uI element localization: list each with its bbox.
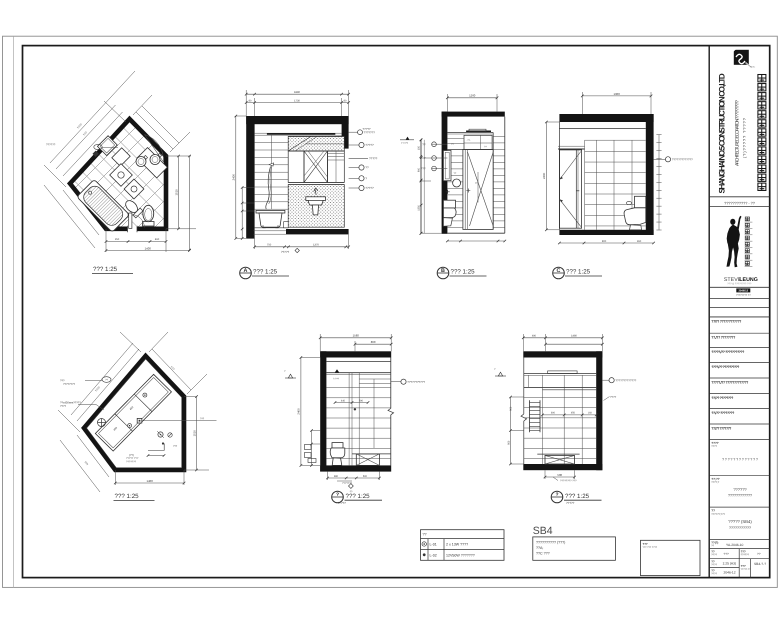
svg-text:1260: 1260 xyxy=(469,94,476,98)
svg-text:1350: 1350 xyxy=(418,205,421,211)
svg-text:RUC: RUC xyxy=(751,66,756,69)
svg-text:500: 500 xyxy=(557,473,562,477)
svg-text:290: 290 xyxy=(359,399,364,402)
svg-text:1890: 1890 xyxy=(294,91,300,94)
svg-text:1730: 1730 xyxy=(294,99,300,102)
svg-text:??,/?? ????????: ??,/?? ???????? xyxy=(711,411,734,415)
svg-text:??: ?? xyxy=(365,166,369,170)
svg-text:??? 1:25: ??? 1:25 xyxy=(566,269,591,276)
svg-text:????: ???? xyxy=(711,554,717,557)
svg-text:? ?.??: ? ?.?? xyxy=(401,142,409,145)
svg-text:????: ???? xyxy=(60,405,66,408)
svg-text:????: ???? xyxy=(610,395,617,399)
svg-text:L-01: L-01 xyxy=(430,543,437,547)
svg-text:??? 1:25: ??? 1:25 xyxy=(253,269,278,276)
svg-text:??,/?? ???????: ??,/?? ??????? xyxy=(711,426,731,430)
svg-text:??????: ?????? xyxy=(741,554,750,557)
svg-text:?????: ????? xyxy=(281,250,290,254)
svg-text:????,/?? ??????????: ????,/?? ?????????? xyxy=(711,365,739,369)
svg-text:????: ???? xyxy=(711,445,717,448)
svg-text:1510: 1510 xyxy=(174,189,178,196)
svg-text:C: C xyxy=(557,268,561,274)
svg-text:???: ??? xyxy=(200,418,205,421)
svg-text:1900: 1900 xyxy=(614,92,621,96)
svg-text:(?)????? ?????: (?)????? ????? xyxy=(742,117,747,158)
svg-text:2 x 13W ????: 2 x 13W ???? xyxy=(446,543,468,547)
svg-text:??A;: ??A; xyxy=(536,546,543,550)
svg-text:2400: 2400 xyxy=(542,172,546,179)
svg-text:2046-12: 2046-12 xyxy=(724,570,736,574)
svg-text:? ? ? ? ? ? ? ? ? ? ? ? ?: ? ? ? ? ? ? ? ? ? ? ? ? ? xyxy=(722,458,758,462)
svg-text:?: ? xyxy=(336,492,339,498)
svg-text:?: ? xyxy=(555,492,558,498)
svg-text:B: B xyxy=(441,268,445,274)
svg-text:?????: ????? xyxy=(365,143,374,147)
svg-text:???????? ???: ???????? ??? xyxy=(560,480,577,483)
svg-text:??: ?? xyxy=(423,533,427,537)
svg-text:?????: ????? xyxy=(365,186,374,190)
svg-text:900: 900 xyxy=(509,406,512,411)
svg-text:??????: ?????? xyxy=(733,487,747,492)
svg-text:1:25 (A3): 1:25 (A3) xyxy=(723,561,737,565)
svg-text:???????: ??????? xyxy=(364,130,376,134)
svg-text:??? 1:25: ??? 1:25 xyxy=(115,493,140,500)
svg-text:2046/12: 2046/12 xyxy=(738,290,748,293)
svg-text:???: ??? xyxy=(643,542,648,546)
svg-text:???: ??? xyxy=(173,445,178,448)
svg-text:??? 1:25: ??? 1:25 xyxy=(93,266,118,273)
svg-text:460: 460 xyxy=(155,238,160,241)
svg-text:???: ??? xyxy=(724,552,729,556)
svg-text:150: 150 xyxy=(418,145,421,150)
svg-text:????: ???? xyxy=(711,573,717,576)
svg-text:????;?: ????;? xyxy=(711,481,719,484)
svg-text:950: 950 xyxy=(507,440,510,445)
svg-text:???????: ??????? xyxy=(126,460,137,463)
svg-text:??? 1:25: ??? 1:25 xyxy=(346,493,371,500)
svg-text:??????;???: ??????;??? xyxy=(711,513,725,516)
svg-text:500: 500 xyxy=(363,475,368,478)
svg-text:??????????? - ??: ??????????? - ?? xyxy=(724,201,755,205)
svg-text:??C ???: ??C ??? xyxy=(536,552,550,556)
svg-text:??: ?? xyxy=(422,142,426,146)
svg-text:??????: ?????? xyxy=(46,143,56,147)
svg-text:?????????? (???): ?????????? (???) xyxy=(536,540,565,544)
svg-text:860: 860 xyxy=(371,340,376,344)
svg-text:2400: 2400 xyxy=(297,408,301,415)
svg-text:350: 350 xyxy=(115,238,120,241)
svg-text:?????: ????? xyxy=(338,501,347,505)
svg-text:SB4: SB4 xyxy=(533,525,553,537)
svg-text:???????: ??????? xyxy=(342,482,353,485)
svg-text:???????????: ??????????? xyxy=(729,526,751,530)
svg-text:440: 440 xyxy=(341,399,346,402)
svg-text:480: 480 xyxy=(532,335,537,338)
svg-text:1480: 1480 xyxy=(571,335,577,338)
svg-text:??: ?? xyxy=(757,552,761,556)
svg-text:?????: ????? xyxy=(566,501,575,505)
svg-text:1400: 1400 xyxy=(145,246,152,250)
svg-text:????????????: ???????????? xyxy=(728,493,752,497)
svg-text:A: A xyxy=(244,268,248,274)
svg-text:ARCHITECTURE DECORATION ?? ???: ARCHITECTURE DECORATION ?? ????????? xyxy=(735,100,740,166)
svg-text:?????????????: ????????????? xyxy=(615,378,636,382)
svg-text:SB4-?-?: SB4-?-? xyxy=(754,562,766,566)
svg-text:????? (SB4): ????? (SB4) xyxy=(728,519,752,524)
svg-text:1510: 1510 xyxy=(192,430,196,437)
svg-text:??? 1:25: ??? 1:25 xyxy=(451,269,476,276)
svg-text:?????: ????? xyxy=(369,156,378,160)
svg-text:????????: ???????? xyxy=(63,383,75,386)
svg-text:??? ??? ????: ??? ??? ???? xyxy=(643,546,658,549)
svg-text:??,/?? ????????: ??,/?? ???????? xyxy=(711,396,733,400)
svg-text:?????,/?? ?????????????: ?????,/?? ????????????? xyxy=(711,380,748,384)
svg-text:??,/?? ????????: ??,/?? ???????? xyxy=(711,336,735,340)
svg-text:750: 750 xyxy=(267,244,272,247)
svg-text:1370: 1370 xyxy=(313,244,319,247)
svg-text:380: 380 xyxy=(334,475,339,478)
svg-text:·??·: ·??· xyxy=(467,139,471,142)
svg-text:???????????: ??????????? xyxy=(407,380,425,384)
svg-text:250: 250 xyxy=(588,412,593,415)
svg-text:??? 1:25: ??? 1:25 xyxy=(565,493,590,500)
svg-text:YA-2046-10: YA-2046-10 xyxy=(726,543,744,547)
svg-text:????: ???? xyxy=(711,564,717,567)
svg-text:360: 360 xyxy=(637,240,642,243)
svg-text:SHANGHAI NO.5 CONSTRUCTION CO.: SHANGHAI NO.5 CONSTRUCTION CO.,LTD xyxy=(718,73,727,193)
svg-text:800: 800 xyxy=(602,240,607,243)
svg-text:???????? ??: ???????? ?? xyxy=(736,294,751,297)
svg-text:1400: 1400 xyxy=(147,479,154,483)
svg-text:12V50W ???????: 12V50W ??????? xyxy=(446,553,475,557)
svg-text:600: 600 xyxy=(551,412,556,415)
svg-text:?????.??: ?????.?? xyxy=(741,568,752,571)
svg-text:?????????????: ????????????? xyxy=(672,157,693,161)
svg-text:2400: 2400 xyxy=(232,174,236,181)
svg-text:??/?? ????????????: ??/?? ???????????? xyxy=(711,319,741,323)
svg-text:1580: 1580 xyxy=(353,334,360,338)
svg-text:?.???: ?.??? xyxy=(333,378,340,381)
svg-text:?????,/?? ???????????: ?????,/?? ??????????? xyxy=(711,350,744,354)
svg-text:L-02: L-02 xyxy=(430,553,437,557)
svg-text:??? & ???????? ???: ??? & ???????? ??? xyxy=(727,283,752,286)
svg-text:450: 450 xyxy=(571,412,576,415)
